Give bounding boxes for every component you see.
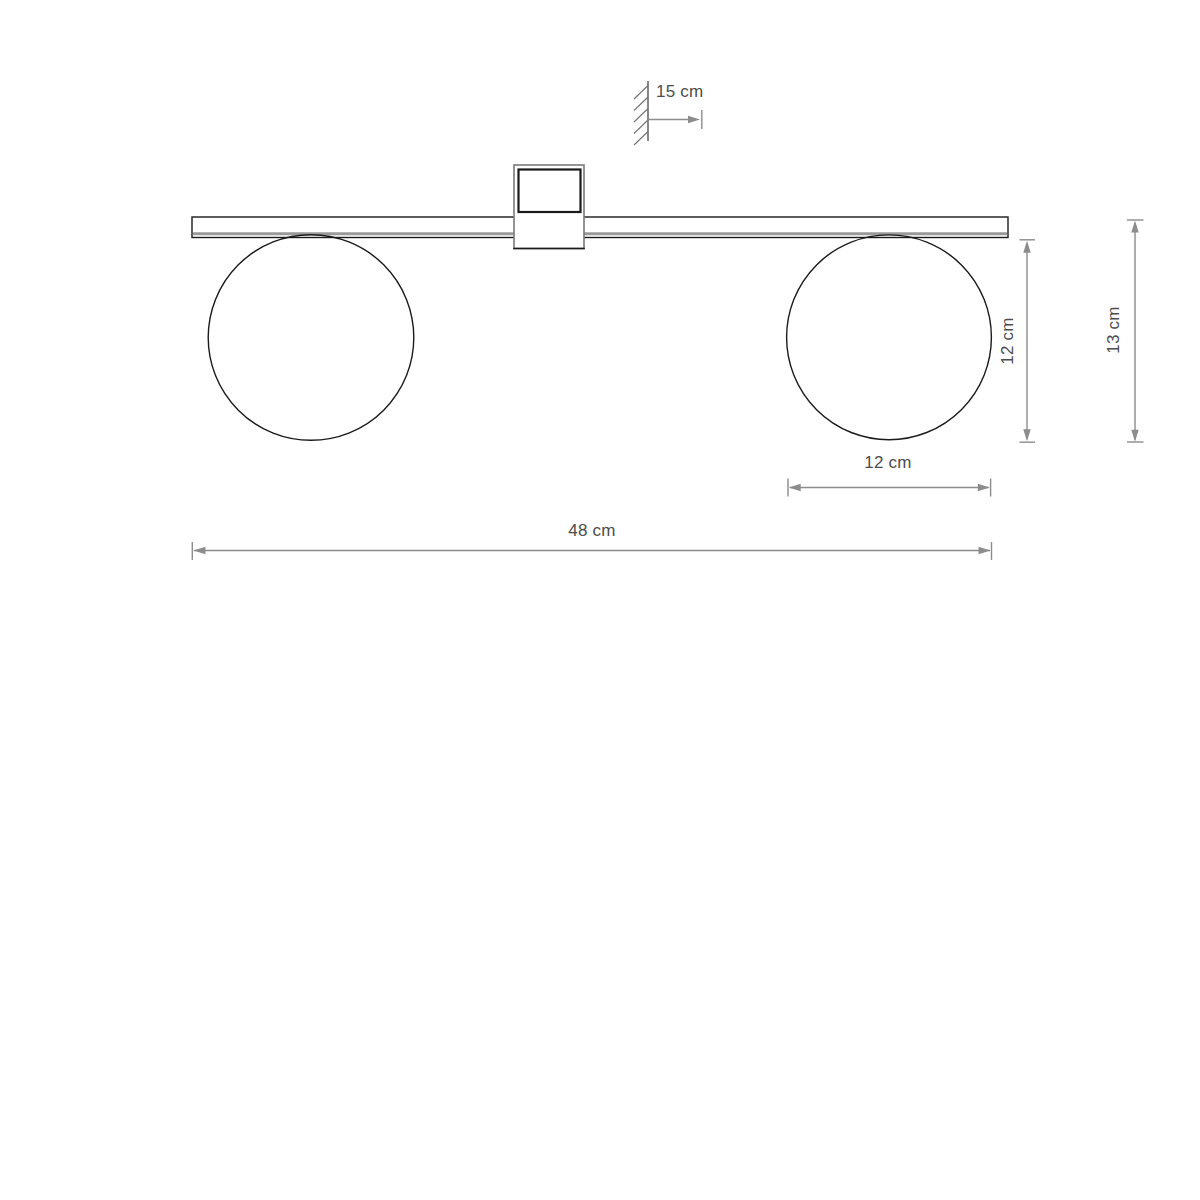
- arrow-right-icon: [978, 484, 990, 491]
- wall-hatch-line: [634, 120, 648, 134]
- left-globe: [208, 235, 414, 441]
- total-height-label: 13 cm: [1105, 306, 1122, 353]
- sphere-width-label: 12 cm: [864, 454, 911, 471]
- total-height-dimension: [1127, 220, 1144, 442]
- wall-hatch-line: [634, 86, 648, 100]
- right-globe: [787, 235, 992, 440]
- sphere-width-dimension: [788, 479, 991, 497]
- dimension-drawing: [0, 0, 1200, 1200]
- arrow-down-icon: [1023, 429, 1030, 441]
- wall-hatch-line: [634, 97, 648, 111]
- arrow-right-icon: [688, 116, 700, 123]
- total-width-dimension: [192, 542, 991, 560]
- mount-box-outer: [514, 165, 584, 249]
- arrow-right-icon: [979, 547, 991, 554]
- wall-offset-label: 15 cm: [656, 83, 703, 100]
- arrow-left-icon: [194, 547, 206, 554]
- arrow-down-icon: [1131, 430, 1138, 442]
- arrow-up-icon: [1023, 241, 1030, 253]
- wall-hatch-line: [634, 132, 648, 146]
- wall-hatch-line: [634, 109, 648, 123]
- total-width-label: 48 cm: [568, 522, 615, 539]
- diagram-canvas: 15 cm 12 cm 13 cm 12 cm 48 cm: [0, 0, 1200, 1200]
- wall-symbol: [634, 81, 648, 145]
- arrow-up-icon: [1131, 221, 1138, 233]
- wall-offset-dimension: [649, 110, 702, 129]
- sphere-height-dimension: [1020, 240, 1036, 442]
- arrow-left-icon: [789, 484, 801, 491]
- sphere-height-label: 12 cm: [999, 317, 1016, 364]
